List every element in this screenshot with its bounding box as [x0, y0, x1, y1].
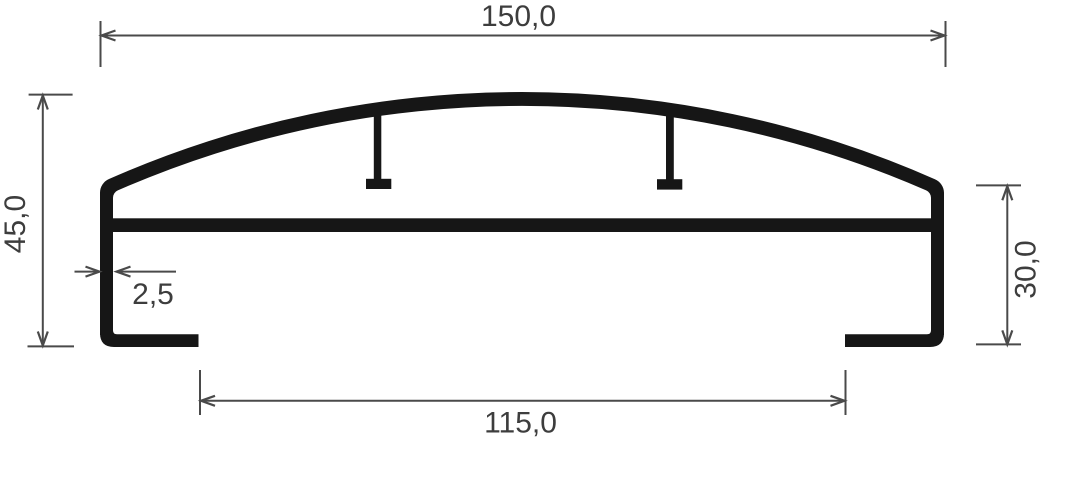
svg-text:2,5: 2,5	[132, 278, 174, 311]
svg-text:115,0: 115,0	[484, 407, 557, 440]
svg-text:30,0: 30,0	[1010, 240, 1043, 298]
svg-text:45,0: 45,0	[0, 195, 32, 253]
svg-text:150,0: 150,0	[481, 0, 556, 33]
